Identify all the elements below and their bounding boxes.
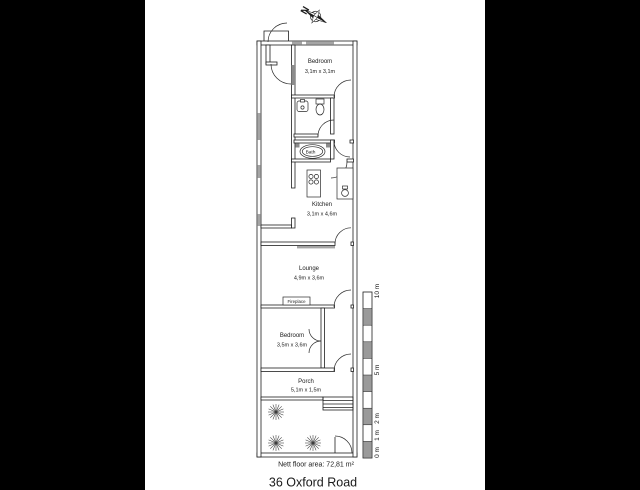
lounge-dims: 4,9m x 3,6m xyxy=(294,276,325,282)
fireplace-label: Fireplace xyxy=(287,299,306,304)
bedroom1-label: Bedroom xyxy=(308,59,332,65)
kitchen-fixtures xyxy=(307,168,353,199)
porch-label: Porch xyxy=(298,379,314,385)
stove-burner-icon xyxy=(309,174,313,178)
bath-label: Bath xyxy=(306,150,316,156)
lounge-label: Lounge xyxy=(299,266,320,272)
scale-bar: 0 m 1 m 2 m 5 m 10 m xyxy=(363,284,381,458)
north-arrow-icon: N xyxy=(297,2,330,30)
bedroom1-dims: 3,1m x 3,1m xyxy=(305,69,336,75)
bedroom2-dims: 3,5m x 3,6m xyxy=(277,343,308,349)
scale-label-2m: 2 m xyxy=(374,413,381,424)
bedroom2-label: Bedroom xyxy=(280,333,304,339)
area-note: Nett floor area: 72,81 m² xyxy=(278,462,355,469)
plant-icon xyxy=(305,435,321,451)
plant-icon xyxy=(268,435,284,451)
toilet-icon xyxy=(316,99,324,104)
entry-protrusion xyxy=(264,31,289,41)
kitchen-island xyxy=(307,170,321,197)
scale-label-1m: 1 m xyxy=(374,430,381,441)
scale-label-10m: 10 m xyxy=(374,284,381,298)
floor-plan-page: N xyxy=(0,0,640,490)
kitchen-label: Kitchen xyxy=(312,202,332,208)
front-door-arc xyxy=(268,23,287,42)
hall-window xyxy=(292,65,296,85)
plant-icon xyxy=(268,404,284,420)
scale-label-5m: 5 m xyxy=(374,365,381,376)
kitchen-sink-icon xyxy=(342,190,349,197)
steps xyxy=(323,397,353,410)
floor-plan-drawing: N xyxy=(0,0,640,490)
porch-dims: 5,1m x 1,5m xyxy=(291,388,322,394)
kitchen-dims: 3,1m x 4,6m xyxy=(307,212,338,218)
bathroom-fixtures xyxy=(297,99,325,158)
page-title: 36 Oxford Road xyxy=(269,476,357,490)
scale-label-0m: 0 m xyxy=(374,447,381,458)
